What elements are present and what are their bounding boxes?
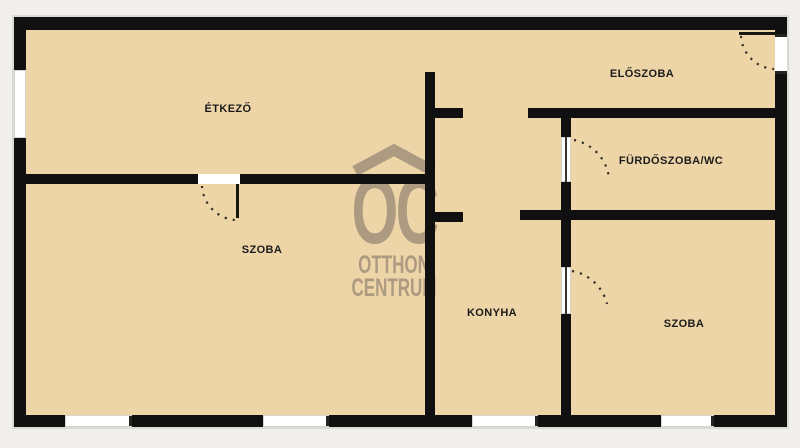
- outer-wall-right: [775, 17, 787, 427]
- wall-stub-lower: [430, 212, 463, 222]
- bathroom-door: [561, 137, 571, 182]
- wall-central-vertical: [425, 72, 435, 417]
- window-bottom-3-notch: [535, 416, 538, 426]
- room-label-furdoszoba-wc: FÜRDŐSZOBA/WC: [619, 155, 723, 167]
- window-bottom-2-notch: [326, 416, 329, 426]
- konyha-szoba-door: [561, 267, 571, 314]
- window-bottom-4-notch: [711, 416, 714, 426]
- window-bottom-1: [65, 415, 132, 427]
- room-label-szoba-2: SZOBA: [664, 318, 705, 330]
- room-label-szoba-1: SZOBA: [242, 244, 283, 256]
- window-bottom-3: [472, 415, 538, 427]
- room-label-etkezo: ÉTKEZŐ: [204, 103, 251, 115]
- bathroom-door-panel: [565, 137, 567, 182]
- window-bottom-2: [263, 415, 329, 427]
- room-label-konyha: KONYHA: [467, 307, 517, 319]
- floorplan-image: OC OTTHON CENTRUM ÉTKEZŐELŐSZOBAFÜRDŐSZO…: [0, 0, 800, 448]
- window-bottom-1-notch: [129, 416, 132, 426]
- entrance-door-leaf: [739, 32, 777, 35]
- wall-stub-upper: [430, 108, 463, 118]
- szoba-door-leaf: [236, 184, 239, 218]
- konyha-szoba-door-panel: [565, 267, 567, 314]
- szoba-door-opening: [198, 174, 240, 184]
- window-left: [14, 70, 26, 138]
- window-bottom-4: [661, 415, 714, 427]
- entrance-door-opening: [775, 34, 787, 74]
- outer-wall-top: [14, 17, 787, 30]
- wall-furdo-bottom: [520, 210, 775, 220]
- room-label-eloszoba: ELŐSZOBA: [610, 68, 674, 80]
- entrance-door-opening-notch-bottom: [775, 71, 787, 74]
